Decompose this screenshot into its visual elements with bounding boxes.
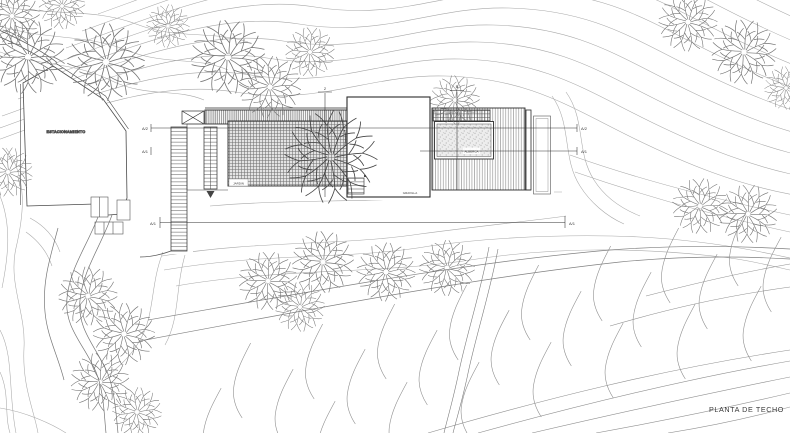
section-label-a1-lower-left: A/1 [150, 221, 157, 226]
bridge-x-brace [182, 111, 204, 124]
section-label-a1-lower-right: A/1 [569, 221, 576, 226]
pool: ALBERCA [435, 122, 494, 160]
gravel-label: GRAVILLA [403, 191, 417, 195]
section-label-a2-right: A/2 [581, 126, 588, 131]
terrace-zigzag-row [314, 286, 767, 433]
pergola-strip [433, 110, 490, 121]
roof-plan-drawing: ESTACIONAMIENTO ALBERCA JARDIN [0, 0, 790, 433]
terrace-contours [140, 211, 790, 433]
section-label-2: 2 [324, 86, 327, 91]
drawing-title: PLANTA DE TECHO [709, 405, 784, 414]
roof-plan-sheet: ESTACIONAMIENTO ALBERCA JARDIN [0, 0, 790, 433]
pool-label: ALBERCA [464, 150, 478, 154]
section-label-a2-left: A/2 [142, 126, 149, 131]
walkway-ramp [140, 127, 187, 257]
east-patio-frame [526, 110, 551, 194]
terrace-zigzag-row [229, 211, 753, 419]
section-label-a1-left: A/1 [142, 149, 149, 154]
garden-label: JARDIN [233, 181, 244, 185]
section-line-a1-lower: A/1 A/1 [150, 216, 576, 228]
parking-label: ESTACIONAMIENTO [47, 130, 86, 134]
section-label-b: B [456, 84, 459, 89]
terrace-zigzag-row [200, 237, 787, 433]
staircase [204, 127, 217, 198]
section-label-a1-right: A/1 [581, 149, 588, 154]
